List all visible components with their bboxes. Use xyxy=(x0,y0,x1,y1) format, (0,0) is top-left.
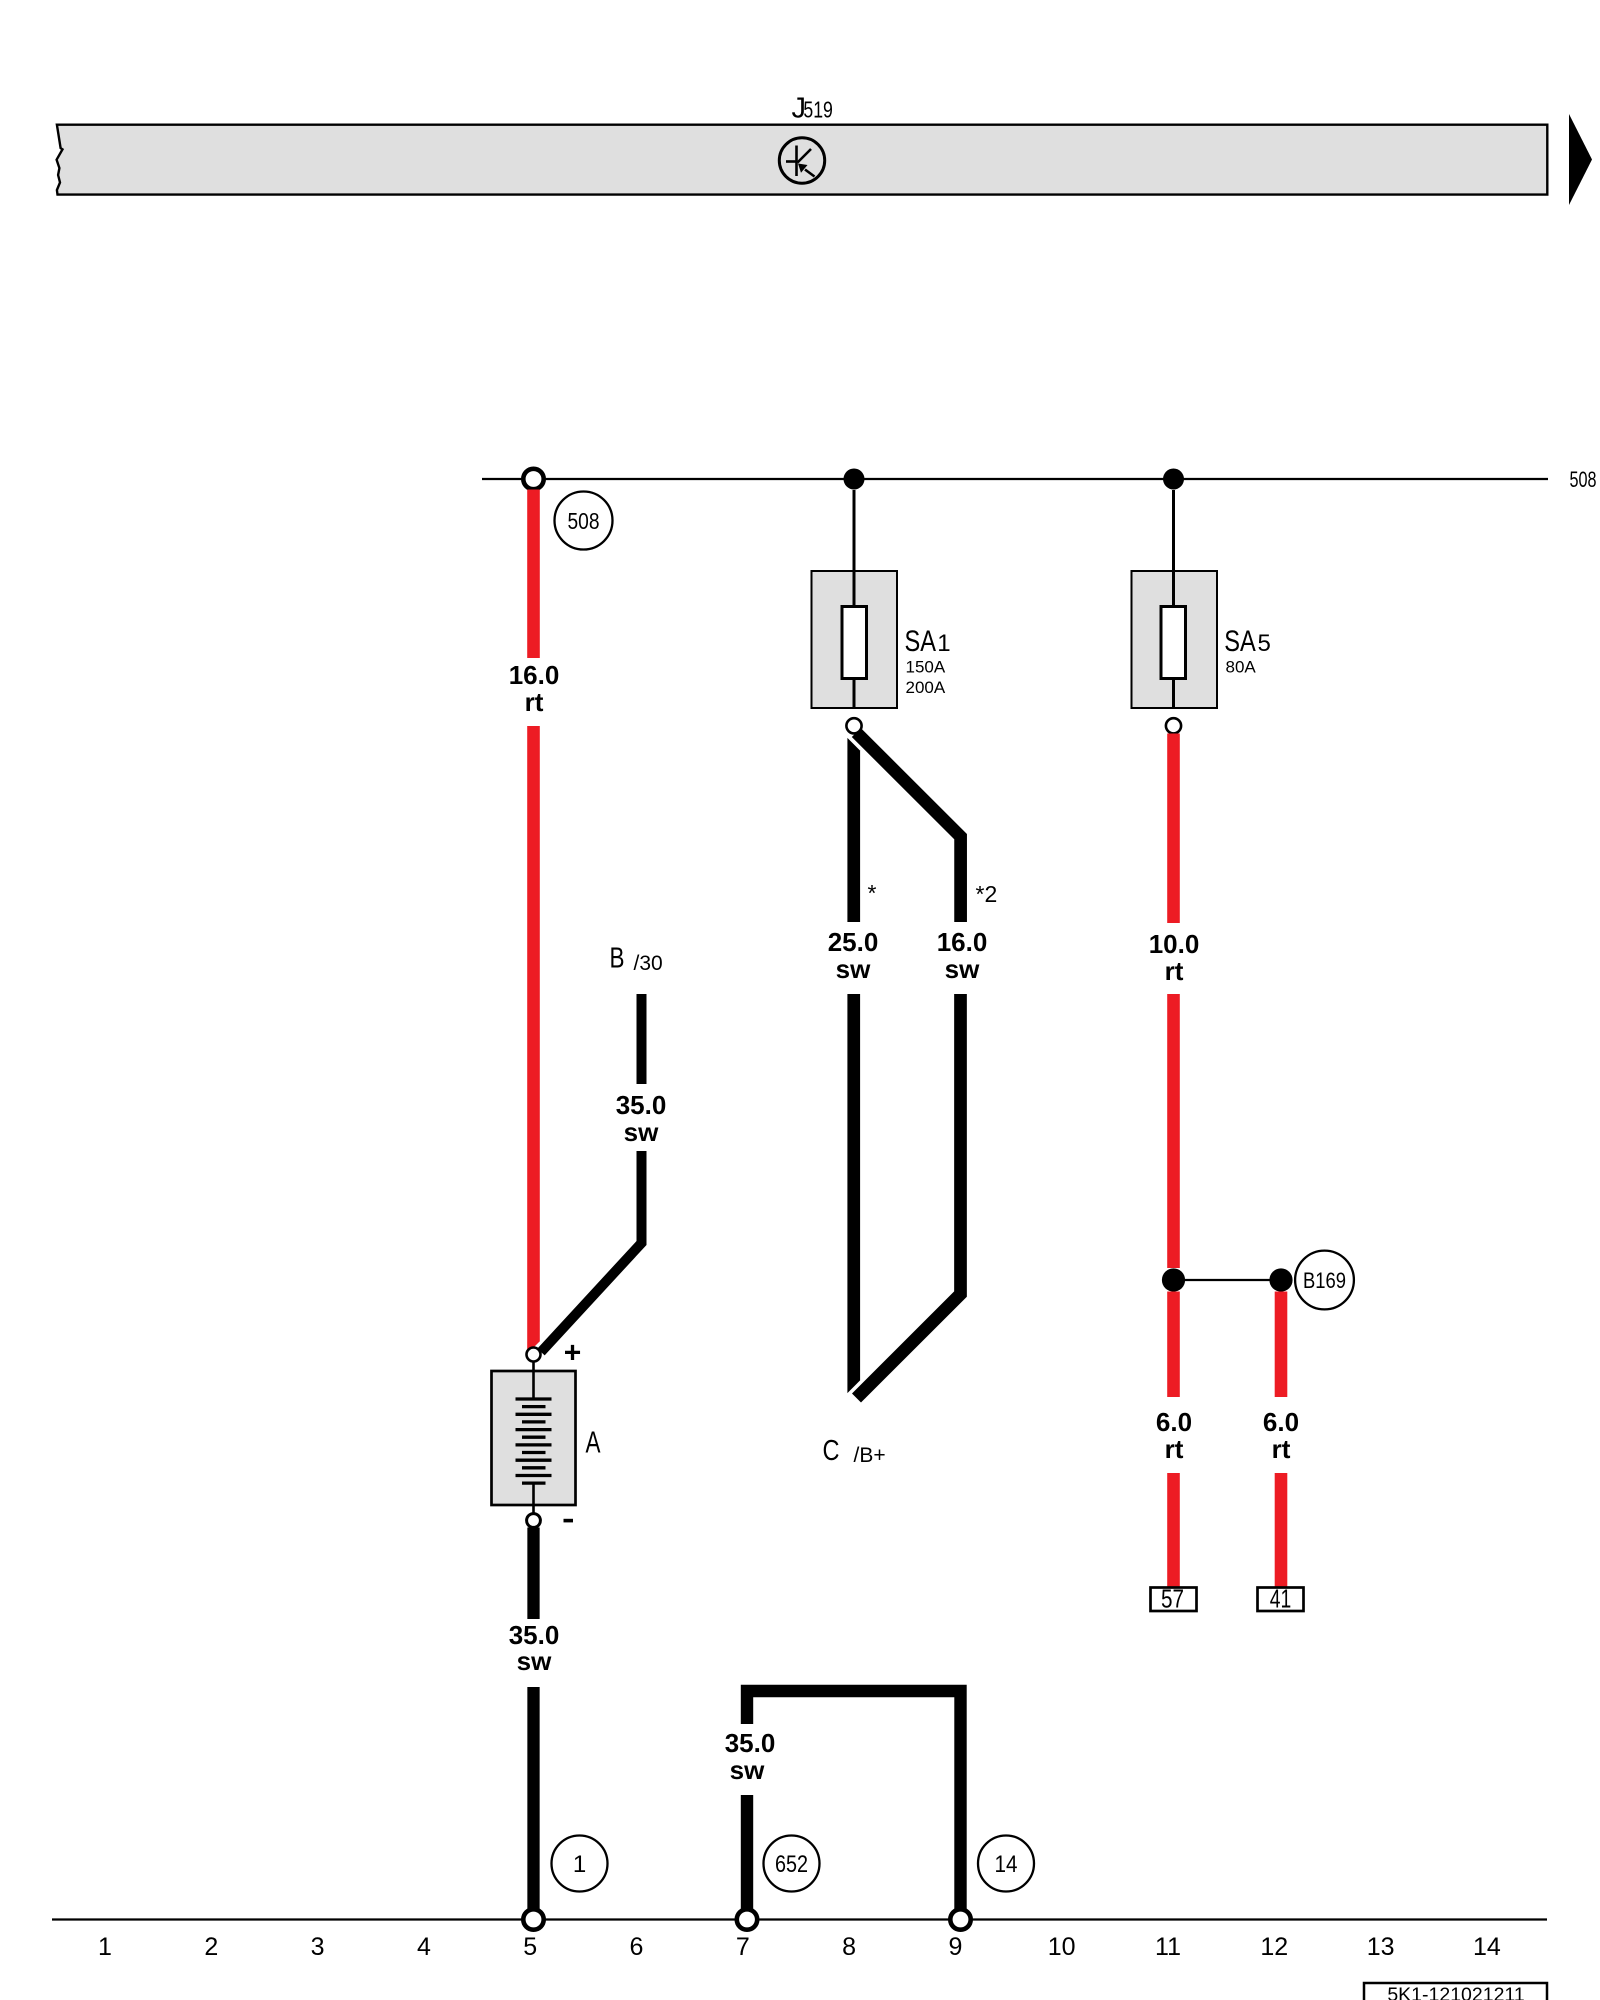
svg-text:5K1-121021211: 5K1-121021211 xyxy=(1387,1984,1524,2000)
svg-text:4: 4 xyxy=(417,1933,431,1961)
svg-text:10.0: 10.0 xyxy=(1149,929,1200,959)
svg-text:rt: rt xyxy=(525,687,544,717)
svg-text:sw: sw xyxy=(624,1117,659,1147)
svg-text:rt: rt xyxy=(1272,1434,1291,1464)
svg-text:5: 5 xyxy=(523,1933,537,1961)
svg-text:C: C xyxy=(823,1435,840,1467)
svg-text:B169: B169 xyxy=(1303,1268,1346,1293)
svg-text:14: 14 xyxy=(1473,1933,1501,1961)
svg-text:11: 11 xyxy=(1155,1933,1181,1961)
svg-text:80A: 80A xyxy=(1226,658,1257,677)
svg-text:13: 13 xyxy=(1367,1933,1395,1961)
svg-text:SA: SA xyxy=(1224,625,1256,658)
svg-text:9: 9 xyxy=(948,1933,962,1961)
svg-text:35.0: 35.0 xyxy=(616,1090,667,1120)
svg-text:sw: sw xyxy=(836,954,871,984)
svg-text:A: A xyxy=(586,1425,601,1460)
svg-text:14: 14 xyxy=(995,1851,1018,1878)
svg-text:508: 508 xyxy=(568,508,600,534)
svg-text:*: * xyxy=(868,880,877,906)
svg-text:rt: rt xyxy=(1165,1434,1184,1464)
svg-text:1: 1 xyxy=(937,630,950,657)
svg-text:200A: 200A xyxy=(906,678,946,697)
svg-text:7: 7 xyxy=(736,1933,750,1961)
svg-text:10: 10 xyxy=(1048,1933,1076,1961)
svg-text:6.0: 6.0 xyxy=(1263,1407,1299,1437)
svg-text:sw: sw xyxy=(945,954,980,984)
svg-text:1: 1 xyxy=(573,1851,586,1878)
svg-text:sw: sw xyxy=(730,1755,765,1785)
svg-text:57: 57 xyxy=(1161,1584,1184,1614)
svg-text:6.0: 6.0 xyxy=(1156,1407,1192,1437)
svg-text:sw: sw xyxy=(517,1646,552,1676)
svg-text:35.0: 35.0 xyxy=(725,1728,776,1758)
svg-text:2: 2 xyxy=(204,1933,218,1961)
svg-text:/B+: /B+ xyxy=(854,1444,886,1467)
svg-text:41: 41 xyxy=(1270,1584,1292,1614)
svg-text:652: 652 xyxy=(775,1851,808,1878)
svg-text:*2: *2 xyxy=(976,881,998,907)
svg-text:3: 3 xyxy=(311,1933,325,1961)
svg-text:/30: /30 xyxy=(634,952,663,975)
svg-text:150A: 150A xyxy=(906,658,946,677)
svg-text:1: 1 xyxy=(98,1933,112,1961)
svg-text:8: 8 xyxy=(842,1933,856,1961)
svg-text:508: 508 xyxy=(1570,467,1597,492)
svg-text:25.0: 25.0 xyxy=(828,927,879,957)
svg-text:16.0: 16.0 xyxy=(509,660,560,690)
svg-text:16.0: 16.0 xyxy=(937,927,988,957)
svg-text:12: 12 xyxy=(1260,1933,1288,1961)
svg-text:5: 5 xyxy=(1258,630,1271,657)
svg-text:SA: SA xyxy=(905,625,937,658)
svg-text:B: B xyxy=(610,943,625,975)
svg-text:6: 6 xyxy=(630,1933,644,1961)
svg-text:+: + xyxy=(564,1337,582,1370)
svg-text:rt: rt xyxy=(1165,956,1184,986)
svg-text:519: 519 xyxy=(803,97,833,123)
